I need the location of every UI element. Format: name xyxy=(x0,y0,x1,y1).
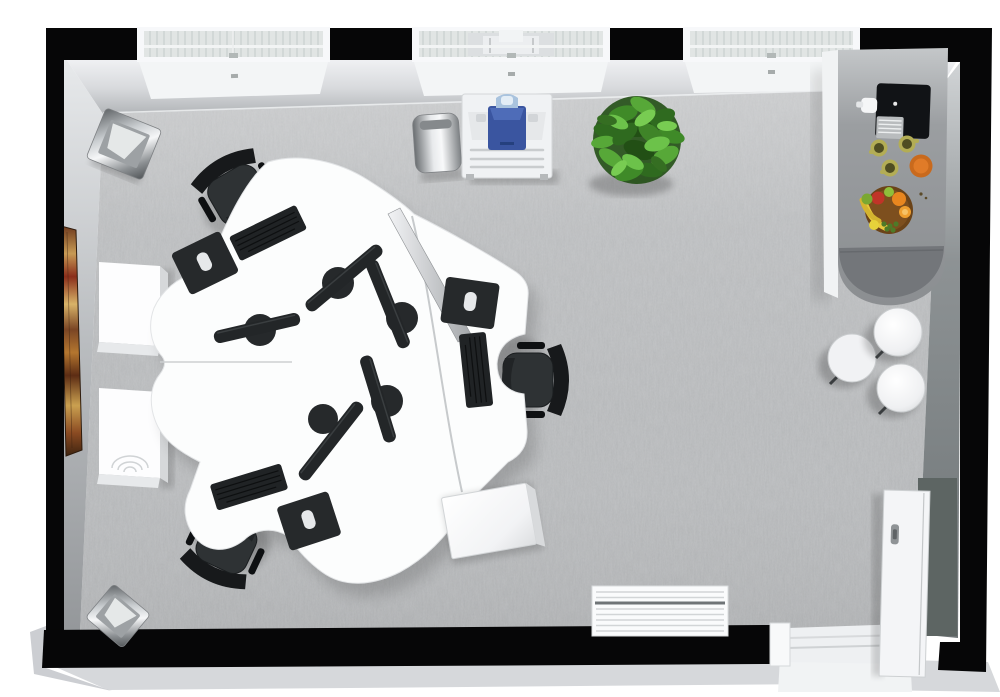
coffee-cup xyxy=(861,98,878,114)
printer-station[interactable] xyxy=(462,94,558,184)
green-apple xyxy=(862,194,873,205)
kitchen-counter[interactable] xyxy=(812,48,948,305)
lime xyxy=(884,187,894,197)
orange xyxy=(892,192,906,206)
floor-plan-render xyxy=(0,0,1000,697)
floor-plan-canvas[interactable] xyxy=(0,0,1000,697)
mouse-pad[interactable] xyxy=(440,276,500,329)
window-handle xyxy=(767,53,776,58)
window-handle xyxy=(229,53,238,58)
orange-bowl[interactable] xyxy=(910,155,933,178)
window-handle xyxy=(507,53,516,58)
door-jamb xyxy=(770,623,790,666)
radiator[interactable] xyxy=(592,586,728,636)
red-apple xyxy=(872,192,885,205)
door-leaf[interactable] xyxy=(879,490,930,677)
windows xyxy=(137,27,860,99)
counter-side-face xyxy=(822,50,838,298)
window[interactable] xyxy=(412,27,610,96)
top-wall-segment xyxy=(610,28,683,60)
left-wall xyxy=(46,28,64,640)
window-exterior-equipment xyxy=(468,30,554,56)
window[interactable] xyxy=(137,27,330,99)
top-wall-segment xyxy=(330,28,412,60)
window-sill xyxy=(414,62,608,96)
lemon xyxy=(869,220,879,230)
window-sill xyxy=(139,62,328,99)
